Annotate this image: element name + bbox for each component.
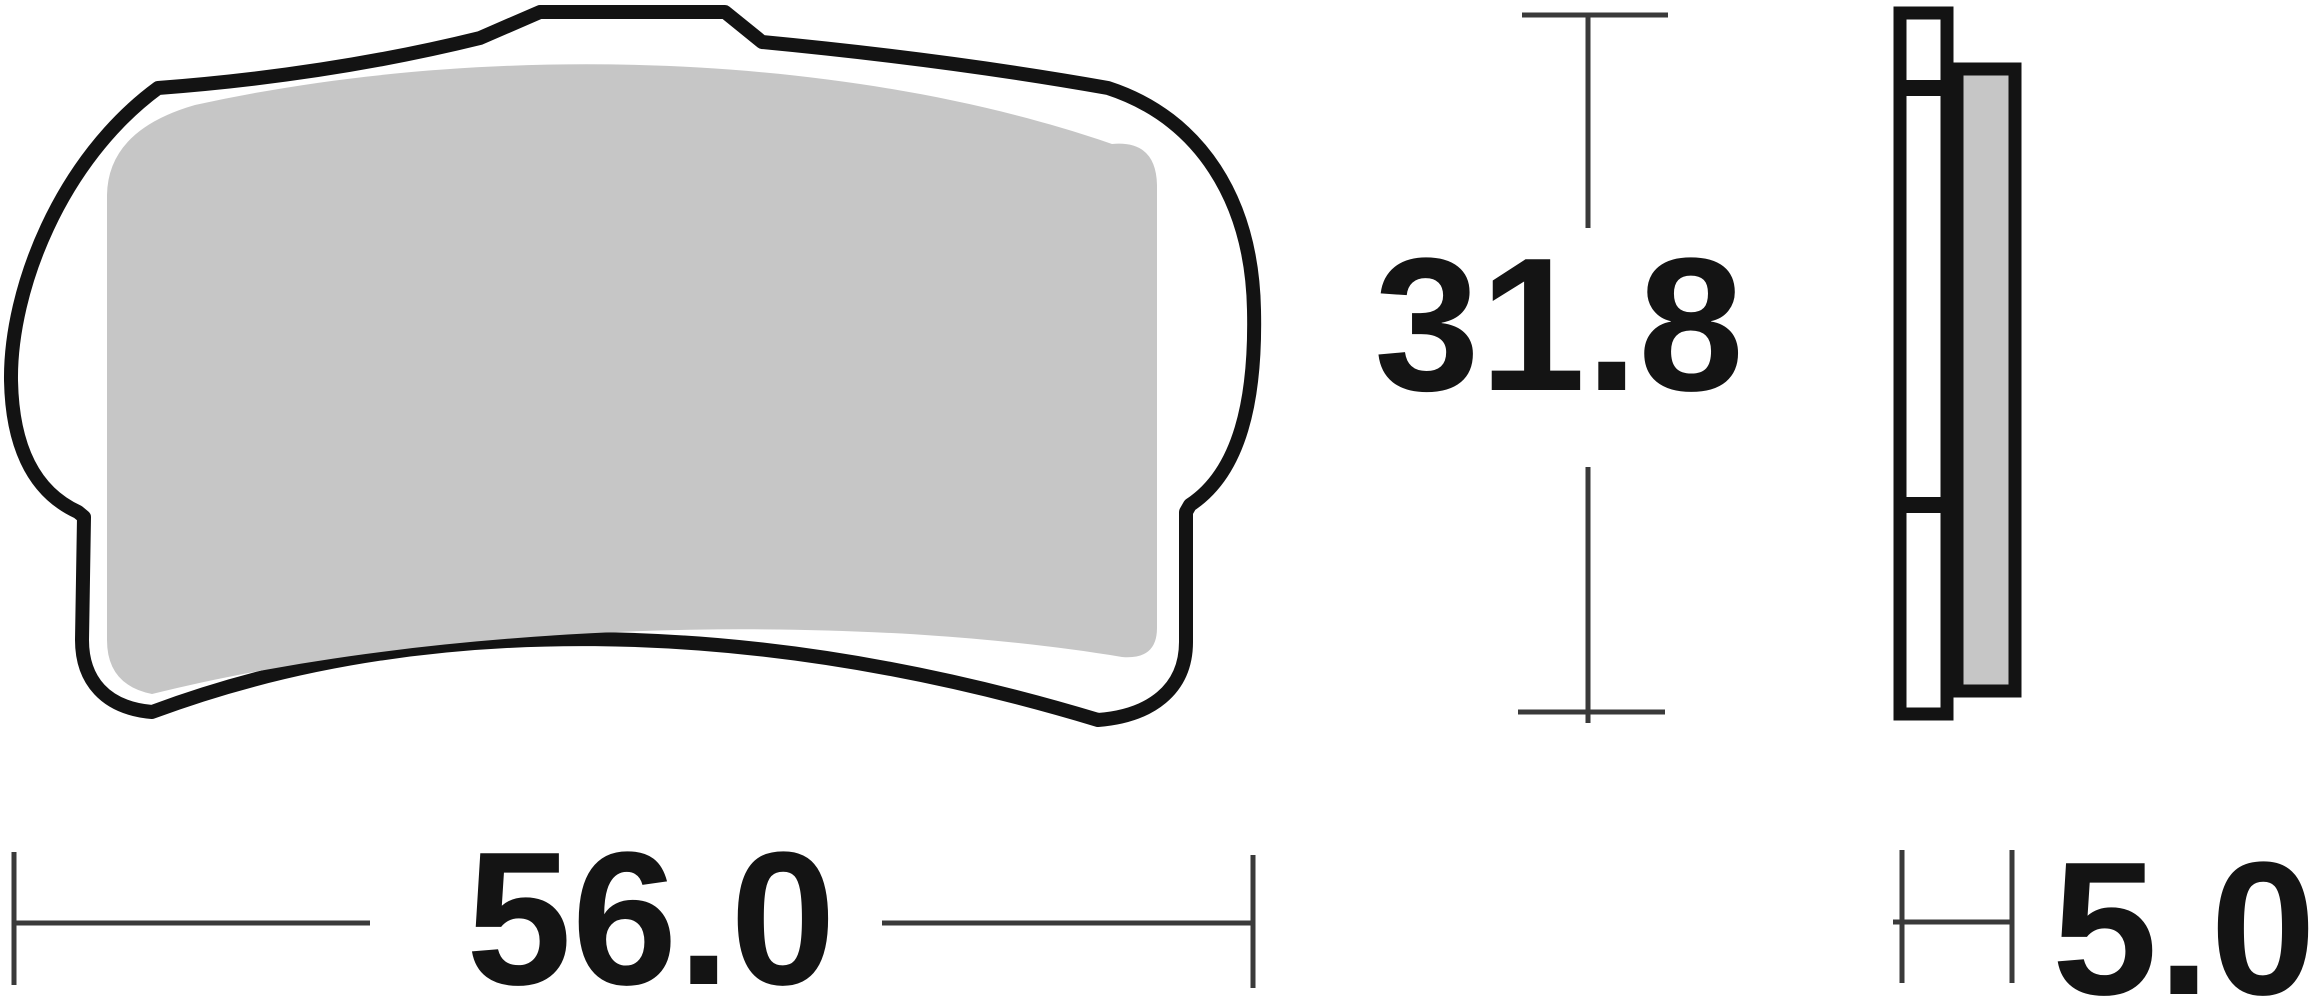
front-friction-material [107,64,1157,694]
height-dimension: 31.8 [1374,15,1744,723]
side-backplate [1900,13,1947,714]
technical-drawing-canvas: 56.0 31.8 5.0 [0,0,2320,1000]
width-dimension-label: 56.0 [466,813,836,1000]
brake-pad-technical-drawing: 56.0 31.8 5.0 [0,0,2320,1000]
width-dimension: 56.0 [14,813,1253,1000]
side-view [1894,13,2015,714]
thickness-dimension: 5.0 [1893,823,2316,1000]
side-friction-material [1957,69,2015,691]
thickness-dimension-label: 5.0 [2052,823,2316,1000]
height-dimension-label: 31.8 [1374,219,1744,431]
front-view [11,12,1254,720]
side-backplate-divider-bottom [1894,497,1953,513]
side-backplate-divider-top [1894,80,1953,96]
